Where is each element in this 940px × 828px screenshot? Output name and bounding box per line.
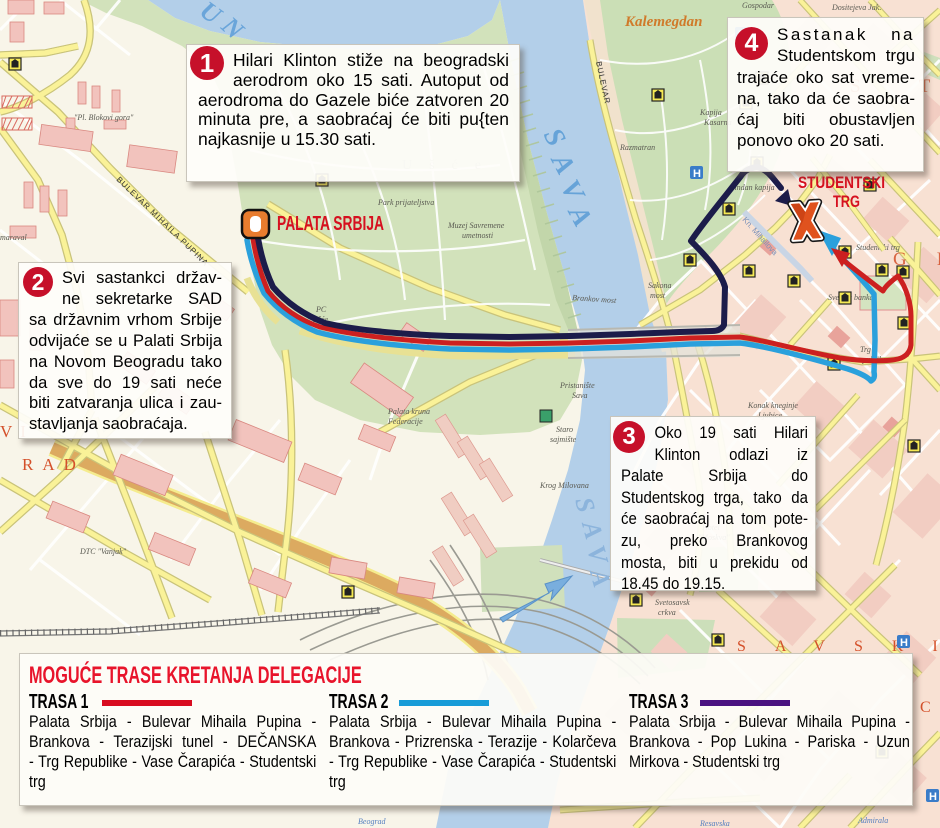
svg-text:PC: PC (315, 305, 327, 314)
svg-text:Admirala: Admirala (857, 816, 888, 825)
svg-text:crkva: crkva (658, 608, 676, 617)
svg-text:sajmište: sajmište (550, 435, 577, 444)
svg-text:most: most (650, 291, 666, 300)
svg-text:Federacije: Federacije (387, 417, 423, 426)
svg-text:RAD: RAD (22, 455, 85, 474)
svg-text:Sava: Sava (572, 391, 588, 400)
svg-text:Konak kneginje: Konak kneginje (747, 401, 798, 410)
svg-text:Trg: Trg (860, 345, 871, 354)
svg-text:Park prijateljstva: Park prijateljstva (377, 198, 434, 207)
svg-text:H: H (693, 168, 701, 180)
svg-text:DTC "Vanjak": DTC "Vanjak" (79, 547, 127, 556)
svg-text:Kalemegdan: Kalemegdan (624, 14, 703, 30)
svg-text:Pristanište: Pristanište (559, 381, 595, 390)
svg-text:Resavska: Resavska (699, 819, 730, 828)
svg-text:STUDENTSKI: STUDENTSKI (798, 173, 885, 192)
svg-text:Beograd: Beograd (358, 817, 387, 826)
svg-text:Gospodar: Gospodar (742, 1, 775, 10)
svg-text:maraval: maraval (0, 233, 27, 242)
svg-text:Kapija: Kapija (699, 108, 722, 117)
svg-text:H: H (900, 637, 908, 649)
svg-text:"Pl. Blokovi gora": "Pl. Blokovi gora" (74, 113, 134, 122)
svg-text:Sakona: Sakona (648, 281, 672, 290)
svg-text:Razmatran: Razmatran (619, 143, 655, 152)
svg-text:PALATA SRBIJA: PALATA SRBIJA (277, 213, 384, 235)
svg-text:Dositejeva Jak.: Dositejeva Jak. (831, 3, 881, 12)
svg-text:Staro: Staro (556, 425, 573, 434)
svg-text:H: H (929, 791, 937, 803)
svg-text:C: C (920, 699, 931, 716)
svg-text:Muzej Savremene: Muzej Savremene (447, 221, 505, 230)
svg-text:Palata kruna: Palata kruna (387, 407, 430, 416)
svg-text:Krog Milovana: Krog Milovana (539, 481, 589, 490)
svg-text:umetnosti: umetnosti (462, 231, 493, 240)
svg-text:Svetosavsk: Svetosavsk (655, 598, 690, 607)
svg-text:TRG: TRG (833, 192, 860, 211)
